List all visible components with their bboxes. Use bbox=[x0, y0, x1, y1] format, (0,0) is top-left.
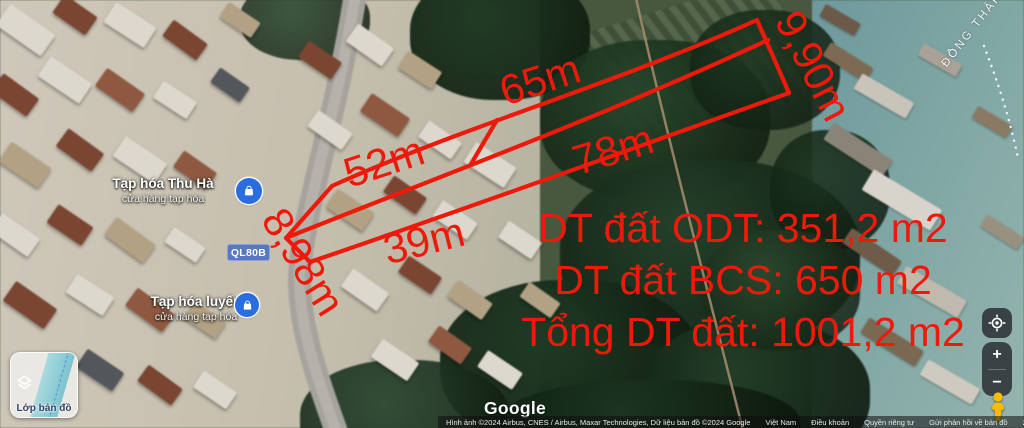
land-area-text: DT đất ODT: 351,2 m2 DT đất BCS: 650 m2 … bbox=[500, 202, 986, 358]
shopping-bag-icon bbox=[241, 299, 254, 312]
zoom-in-button[interactable]: + bbox=[982, 342, 1012, 369]
area-line-odt: DT đất ODT: 351,2 m2 bbox=[500, 202, 986, 254]
map-viewport: 65m 52m 78m 39m 9,90m 8,98m DT đất ODT: … bbox=[0, 0, 1024, 428]
shop-poi-icon[interactable] bbox=[235, 293, 259, 317]
area-line-bcs: DT đất BCS: 650 m2 bbox=[500, 254, 986, 306]
attribution-bar: Hình ảnh ©2024 Airbus, CNES / Airbus, Ma… bbox=[438, 416, 1024, 428]
shopping-bag-icon bbox=[242, 184, 256, 198]
shop-poi-icon[interactable] bbox=[236, 178, 262, 204]
attribution-link-terms[interactable]: Điều khoản bbox=[811, 418, 849, 427]
attribution-link-privacy[interactable]: Quyền riêng tư bbox=[864, 418, 914, 427]
attribution-link-region[interactable]: Việt Nam bbox=[765, 418, 796, 427]
area-line-total: Tổng DT đất: 1001,2 m2 bbox=[500, 306, 986, 358]
map-layers-button[interactable]: Lớp bản đồ bbox=[10, 352, 78, 418]
layers-icon bbox=[17, 375, 32, 390]
zoom-control: + − bbox=[982, 342, 1012, 396]
poi-tap-hoa-thu-ha[interactable]: Tạp hóa Thu Hà bbox=[88, 176, 238, 191]
layers-label: Lớp bản đồ bbox=[11, 403, 77, 414]
my-location-button[interactable] bbox=[982, 308, 1012, 338]
poi-tap-hoa-thu-ha-category: cửa hàng tạp hóa bbox=[88, 193, 238, 205]
road-badge-ql80b: QL80B bbox=[227, 244, 270, 261]
imagery-credit: Hình ảnh ©2024 Airbus, CNES / Airbus, Ma… bbox=[446, 418, 750, 427]
my-location-icon bbox=[988, 314, 1006, 332]
province-boundary-line bbox=[984, 46, 1018, 158]
attribution-link-feedback[interactable]: Gửi phản hồi về bản đồ bbox=[929, 418, 1007, 427]
